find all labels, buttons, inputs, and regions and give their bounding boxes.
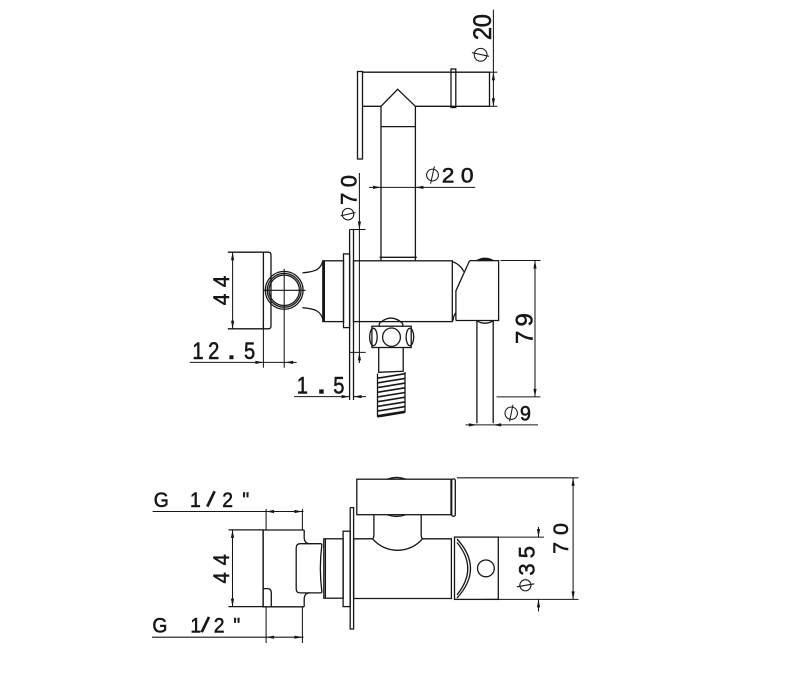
svg-text:0: 0: [469, 14, 497, 27]
svg-text:0: 0: [461, 163, 474, 187]
svg-text:0: 0: [549, 523, 573, 535]
svg-text:3: 3: [515, 563, 540, 575]
svg-text:2: 2: [208, 338, 219, 365]
svg-text:4: 4: [210, 572, 234, 583]
svg-text:2: 2: [222, 488, 233, 512]
svg-text:9: 9: [511, 313, 538, 326]
svg-text:4: 4: [209, 294, 234, 306]
svg-text:5: 5: [515, 546, 540, 558]
svg-text:": ": [233, 613, 240, 637]
svg-text:0: 0: [336, 175, 361, 187]
svg-text:2: 2: [442, 163, 455, 187]
svg-text:1: 1: [190, 613, 201, 637]
svg-text:5: 5: [333, 372, 344, 399]
svg-text:2: 2: [469, 27, 497, 40]
svg-text:7: 7: [336, 193, 361, 205]
svg-text:7: 7: [511, 331, 538, 344]
svg-text:1: 1: [297, 372, 308, 399]
svg-text:1: 1: [190, 488, 201, 512]
svg-text:9: 9: [520, 402, 531, 426]
svg-text:4: 4: [209, 276, 234, 288]
svg-text:2: 2: [214, 613, 225, 637]
svg-text:5: 5: [244, 338, 255, 365]
svg-text:4: 4: [210, 554, 234, 565]
svg-text:1: 1: [192, 338, 203, 365]
svg-text:": ": [242, 488, 249, 512]
svg-text:7: 7: [549, 542, 573, 554]
svg-text:G: G: [154, 488, 169, 512]
svg-text:G: G: [152, 613, 167, 637]
